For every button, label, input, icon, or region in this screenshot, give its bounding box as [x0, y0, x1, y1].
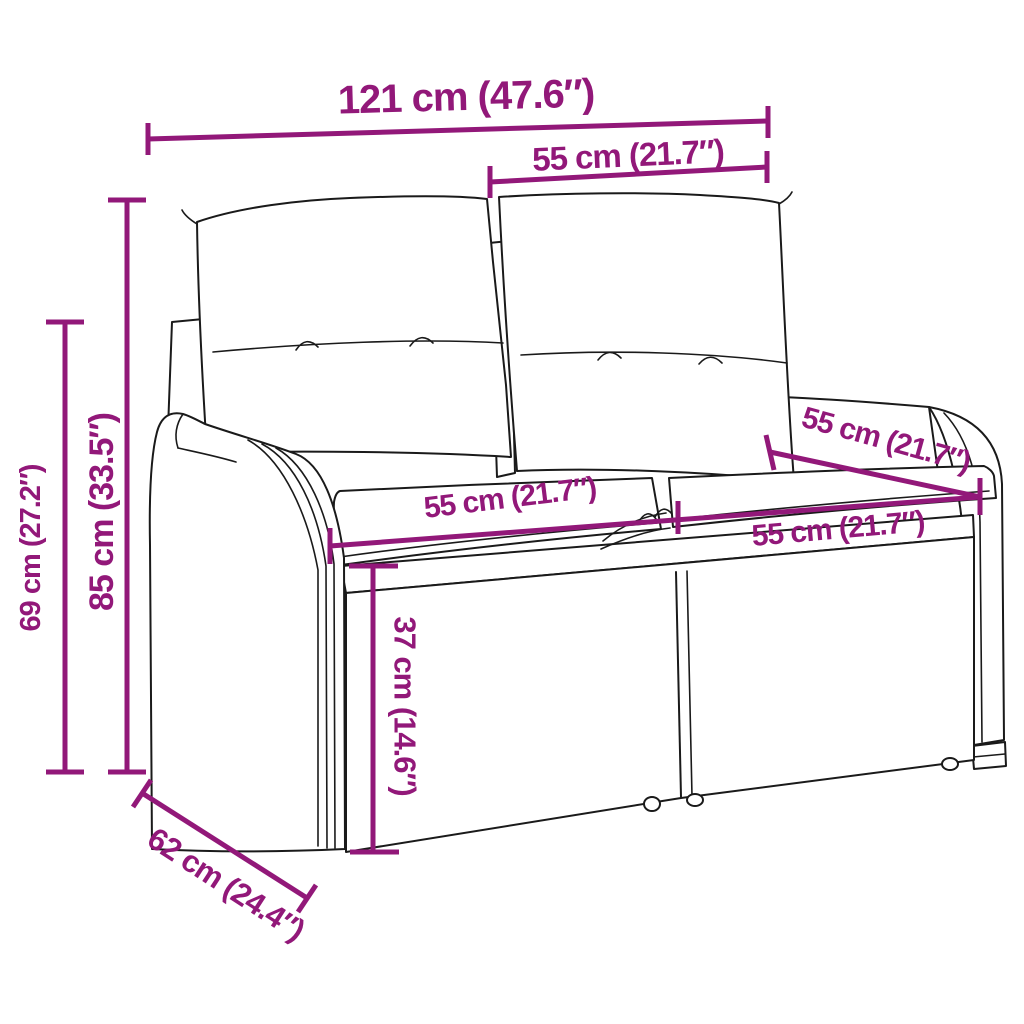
dim-total-height-label: 85 cm (33.5″) — [83, 413, 121, 611]
dim-seat-height-label: 37 cm (14.6″) — [388, 616, 423, 795]
garden-bench-dimension-diagram: 121 cm (47.6″) 55 cm (21.7″) 85 cm (33.5… — [0, 0, 1024, 1024]
dim-overall-width-label: 121 cm (47.6″) — [337, 71, 595, 122]
back-cushion-right — [499, 192, 794, 481]
left-armrest — [150, 413, 345, 851]
dimension-diagram-canvas: 121 cm (47.6″) 55 cm (21.7″) 85 cm (33.5… — [0, 0, 1024, 1024]
back-cushion-left — [182, 196, 511, 457]
dim-armrest-height: 69 cm (27.2″) — [15, 322, 84, 772]
dim-backrest-section-width: 55 cm (21.7″) — [490, 132, 767, 198]
foot — [644, 797, 660, 811]
foot — [687, 794, 703, 806]
foot — [942, 758, 958, 770]
dim-armrest-height-label: 69 cm (27.2″) — [15, 464, 47, 631]
dim-total-height: 85 cm (33.5″) — [83, 200, 146, 772]
